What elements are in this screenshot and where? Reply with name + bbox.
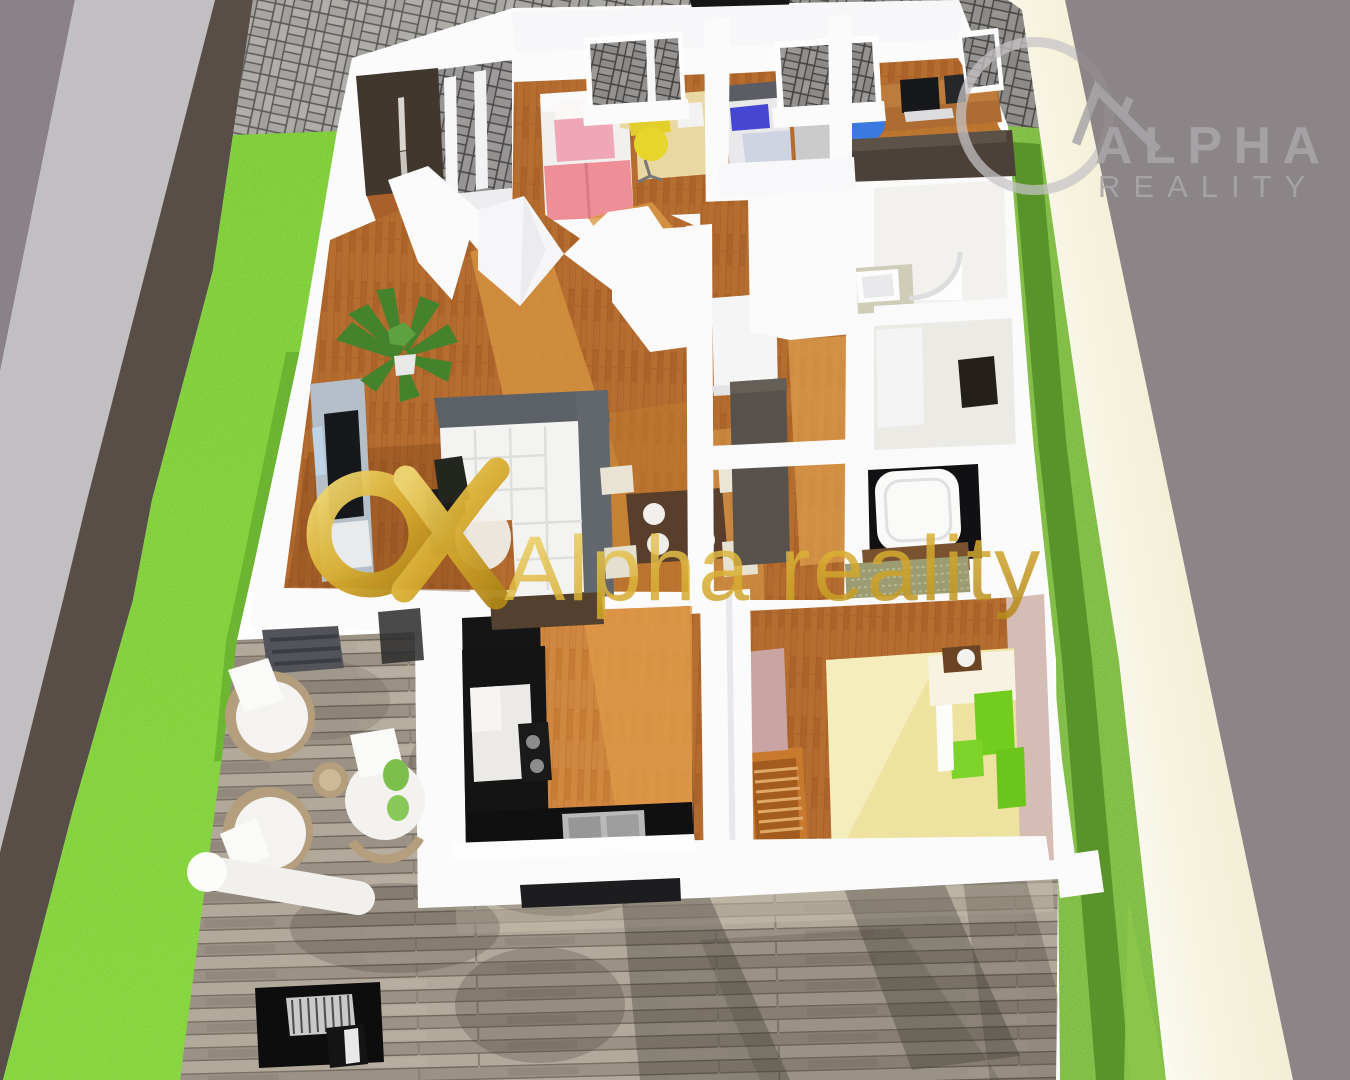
svg-text:Alpha reality: Alpha reality xyxy=(504,518,1043,620)
svg-text:REALITY: REALITY xyxy=(1098,169,1318,204)
svg-text:ALPHA: ALPHA xyxy=(1095,117,1332,175)
